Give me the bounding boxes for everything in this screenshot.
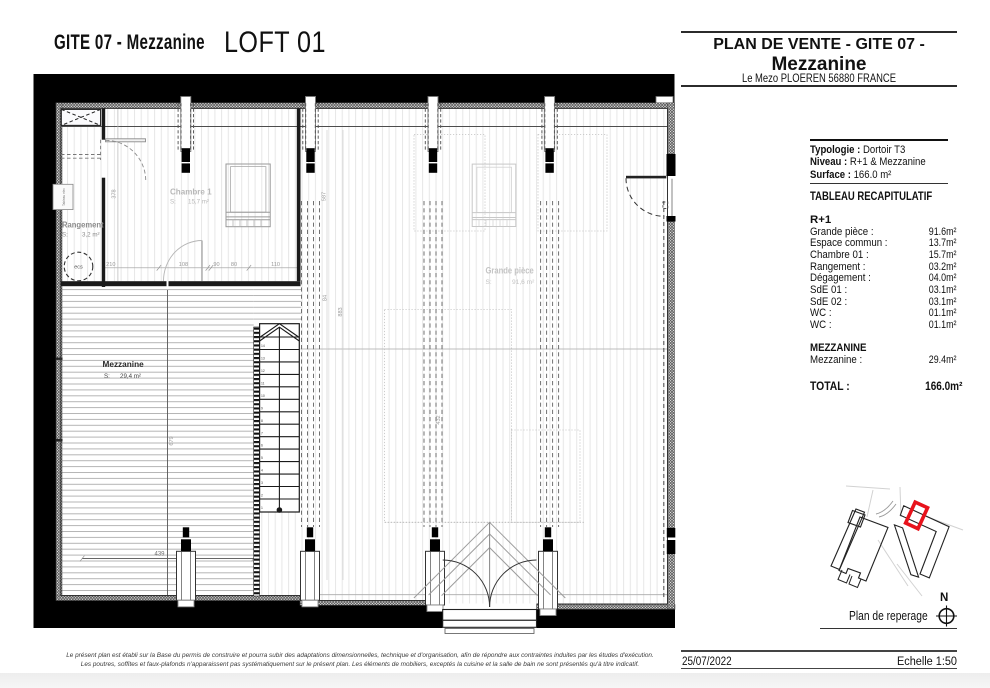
svg-text:14: 14 (261, 344, 265, 348)
svg-text:80: 80 (231, 262, 237, 268)
svg-text:84: 84 (323, 295, 329, 301)
svg-text:Mezzanine: Mezzanine (103, 359, 145, 369)
svg-text:3: 3 (261, 481, 263, 485)
svg-text:2: 2 (261, 494, 263, 498)
svg-text:13: 13 (261, 357, 265, 361)
svg-text:12: 12 (261, 369, 265, 373)
svg-text:S:: S: (104, 373, 110, 380)
svg-text:7: 7 (261, 431, 263, 435)
svg-text:587: 587 (322, 192, 328, 201)
svg-text:378: 378 (112, 189, 118, 198)
svg-text:439: 439 (154, 552, 165, 558)
svg-text:10: 10 (261, 394, 265, 398)
svg-text:1: 1 (261, 506, 263, 510)
svg-text:110: 110 (271, 262, 280, 268)
svg-text:Tableau elec: Tableau elec (62, 188, 66, 206)
svg-text:8: 8 (261, 419, 263, 423)
svg-text:883: 883 (338, 307, 344, 316)
svg-text:Grande pièce: Grande pièce (486, 266, 534, 276)
svg-text:Chambre 1: Chambre 1 (170, 188, 212, 197)
svg-text:210: 210 (106, 262, 115, 268)
svg-text:108: 108 (179, 262, 188, 268)
svg-text:15,7 m²: 15,7 m² (188, 199, 209, 206)
svg-text:5: 5 (261, 456, 263, 460)
svg-text:91,6 m²: 91,6 m² (512, 279, 535, 286)
svg-text:432: 432 (436, 415, 442, 424)
svg-text:4: 4 (261, 469, 263, 473)
svg-text:90: 90 (213, 262, 219, 268)
svg-text:3,2 m²: 3,2 m² (82, 232, 100, 239)
svg-text:679: 679 (169, 436, 175, 445)
svg-text:S:: S: (170, 199, 176, 206)
svg-text:29,4 m²: 29,4 m² (120, 373, 141, 380)
svg-text:ecs: ecs (74, 265, 83, 271)
svg-text:9: 9 (261, 406, 263, 410)
svg-text:S:: S: (62, 232, 68, 239)
svg-text:11: 11 (261, 381, 265, 385)
svg-text:6: 6 (261, 444, 263, 448)
svg-text:S:: S: (486, 279, 492, 286)
svg-text:Rangement: Rangement (62, 221, 104, 230)
